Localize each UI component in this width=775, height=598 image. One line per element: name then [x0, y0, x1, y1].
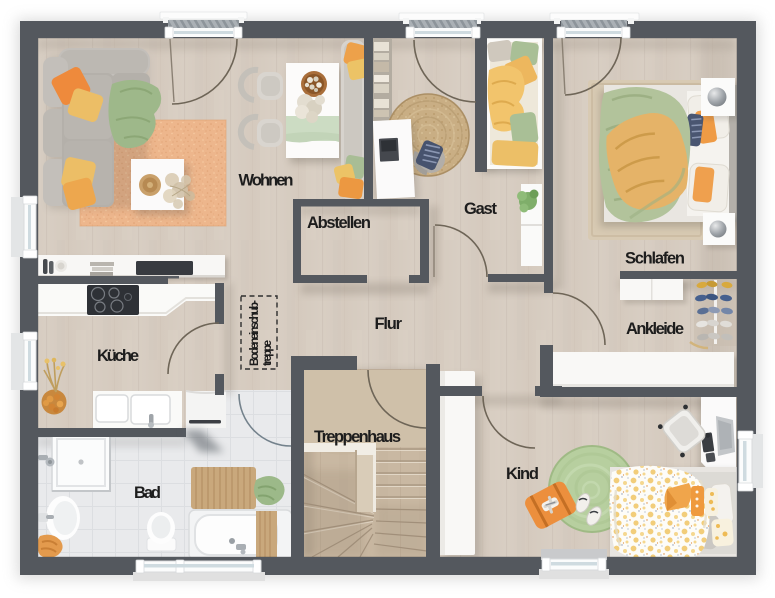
svg-text:Abstellen: Abstellen: [307, 214, 371, 232]
svg-text:Bodeneinschub-: Bodeneinschub-: [249, 300, 261, 366]
svg-text:Ankleide: Ankleide: [626, 320, 684, 338]
svg-text:treppe: treppe: [262, 340, 274, 366]
svg-text:Kind: Kind: [506, 465, 539, 483]
svg-text:Flur: Flur: [375, 315, 403, 333]
svg-text:Bad: Bad: [134, 484, 161, 502]
svg-text:Wohnen: Wohnen: [239, 172, 294, 190]
svg-text:Schlafen: Schlafen: [625, 250, 685, 268]
svg-text:Gast: Gast: [464, 200, 498, 218]
svg-text:Küche: Küche: [97, 347, 139, 365]
svg-text:Treppenhaus: Treppenhaus: [314, 428, 401, 446]
